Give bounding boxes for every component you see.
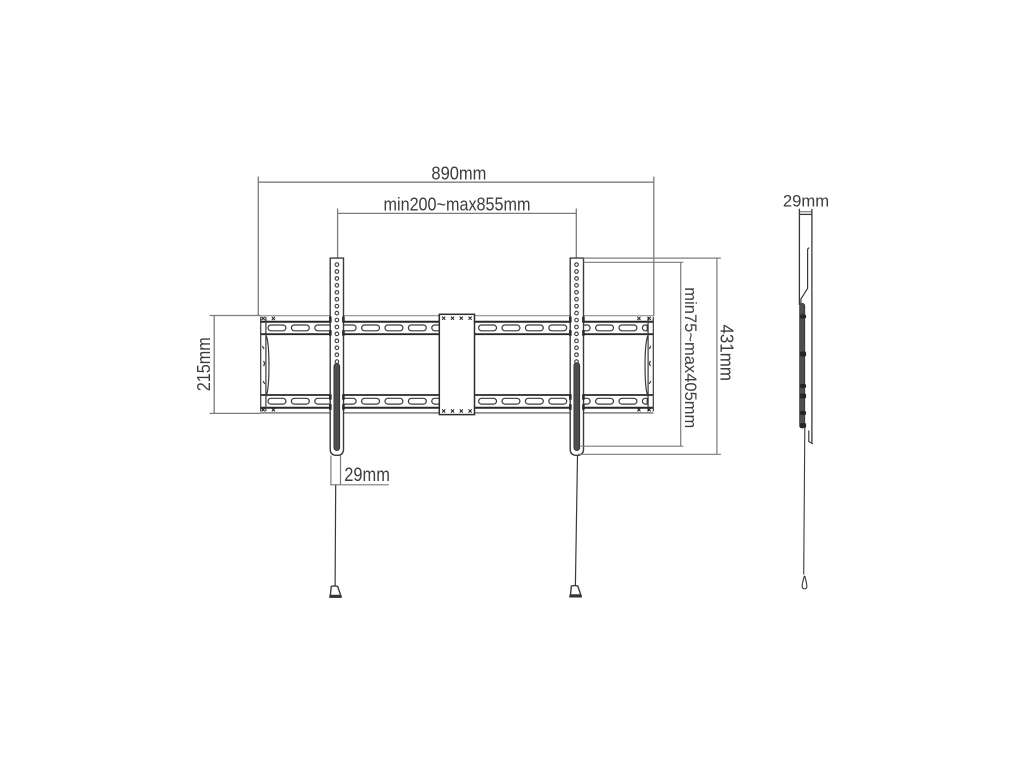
svg-text:890mm: 890mm bbox=[431, 163, 486, 183]
svg-text:min75~max405mm: min75~max405mm bbox=[681, 287, 700, 428]
svg-text:29mm: 29mm bbox=[783, 191, 829, 210]
svg-text:min200~max855mm: min200~max855mm bbox=[384, 195, 531, 215]
svg-text:29mm: 29mm bbox=[344, 465, 390, 486]
svg-text:431mm: 431mm bbox=[717, 324, 737, 381]
svg-text:215mm: 215mm bbox=[194, 337, 214, 391]
